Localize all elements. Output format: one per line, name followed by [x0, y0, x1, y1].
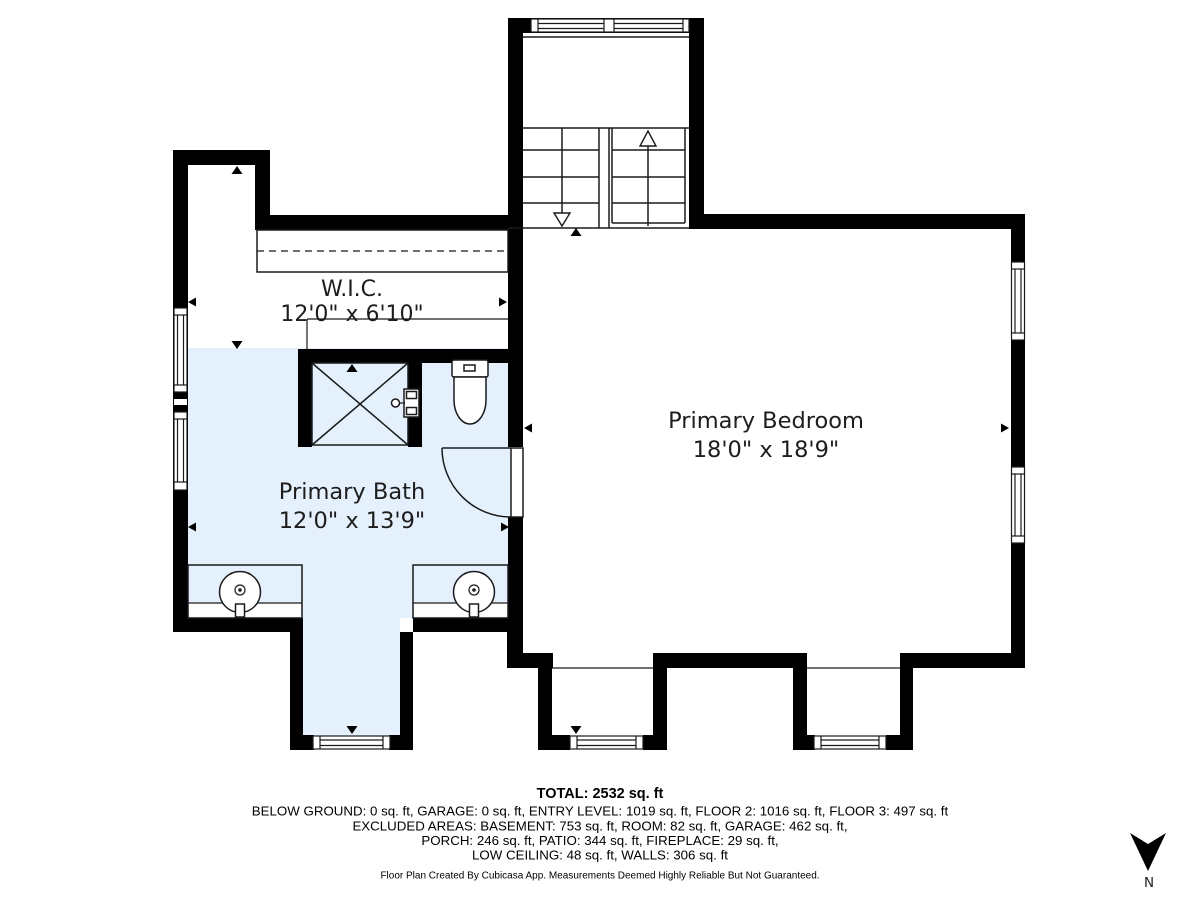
bedroom-label: Primary Bedroom: [668, 408, 864, 434]
window-stairwell-top: [531, 19, 689, 32]
bath-dims: 12'0" x 13'9": [279, 508, 426, 534]
window-bay1: [570, 736, 643, 749]
window-bedroom-lower: [1012, 467, 1025, 543]
wic-dims: 12'0" x 6'10": [280, 302, 423, 327]
floor-plan-page: W.I.C. 12'0" x 6'10" Primary Bath 12'0" …: [0, 0, 1200, 900]
stairs: [508, 37, 689, 228]
window-corridor: [313, 736, 390, 749]
toilet-icon: [452, 360, 488, 424]
window-bedroom-upper: [1012, 262, 1025, 340]
summary-line2: EXCLUDED AREAS: BASEMENT: 753 sq. ft, RO…: [352, 819, 847, 834]
wic-label: W.I.C.: [321, 277, 383, 302]
bath-label: Primary Bath: [279, 479, 425, 505]
north-arrow-icon: N: [1130, 833, 1166, 891]
window-mullion-gap: [174, 399, 187, 405]
stair-up-arrow: [640, 131, 656, 226]
area-summary: TOTAL: 2532 sq. ft BELOW GROUND: 0 sq. f…: [252, 786, 949, 882]
bedroom-dims: 18'0" x 18'9": [693, 437, 840, 463]
summary-line3: PORCH: 246 sq. ft, PATIO: 344 sq. ft, FI…: [421, 833, 778, 848]
closet-shelf: [257, 230, 508, 272]
disclaimer: Floor Plan Created By Cubicasa App. Meas…: [380, 871, 819, 882]
floor-plan-canvas: W.I.C. 12'0" x 6'10" Primary Bath 12'0" …: [0, 0, 1200, 900]
summary-line4: LOW CEILING: 48 sq. ft, WALLS: 306 sq. f…: [472, 848, 728, 863]
window-bay2: [814, 736, 886, 749]
summary-total: TOTAL: 2532 sq. ft: [537, 786, 664, 802]
window-left-upper: [174, 308, 187, 392]
summary-line1: BELOW GROUND: 0 sq. ft, GARAGE: 0 sq. ft…: [252, 804, 949, 819]
window-left-lower: [174, 412, 187, 490]
compass-label: N: [1144, 875, 1154, 891]
